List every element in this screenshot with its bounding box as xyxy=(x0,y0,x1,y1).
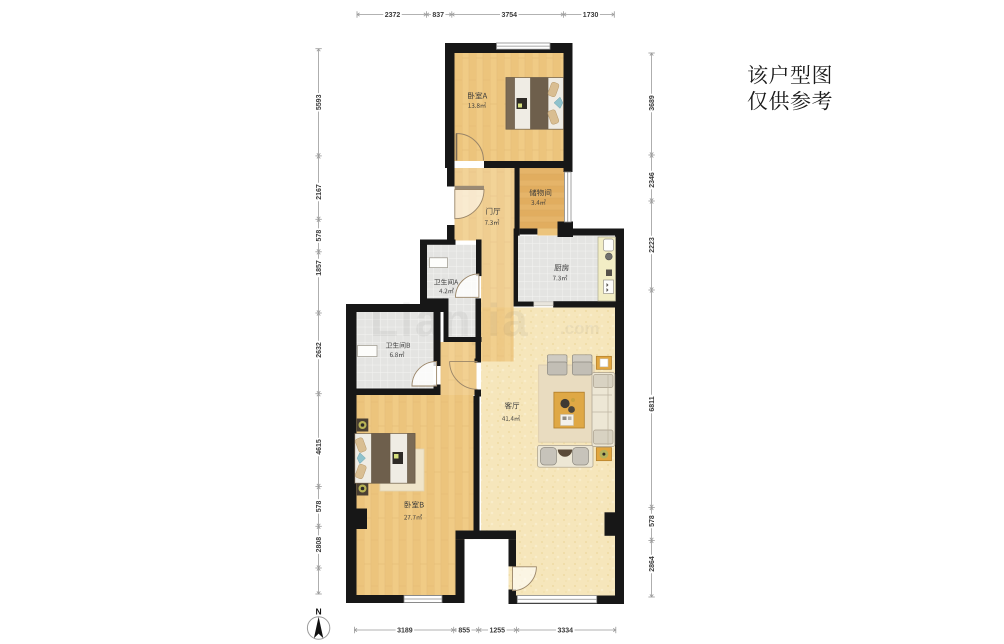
svg-text:2372: 2372 xyxy=(385,12,401,19)
svg-text:1730: 1730 xyxy=(583,12,599,19)
svg-text:578: 578 xyxy=(316,230,323,242)
svg-text:4615: 4615 xyxy=(316,439,323,455)
svg-text:5593: 5593 xyxy=(316,94,323,110)
svg-text:578: 578 xyxy=(649,515,656,527)
svg-text:837: 837 xyxy=(432,12,444,19)
svg-text:2864: 2864 xyxy=(649,556,656,572)
svg-text:6811: 6811 xyxy=(649,396,656,411)
svg-text:1255: 1255 xyxy=(490,628,506,635)
svg-text:3334: 3334 xyxy=(558,628,574,635)
svg-text:2808: 2808 xyxy=(316,537,323,553)
svg-text:2167: 2167 xyxy=(316,184,323,200)
svg-text:855: 855 xyxy=(458,628,470,635)
svg-text:3189: 3189 xyxy=(397,628,413,635)
svg-text:2223: 2223 xyxy=(649,237,656,253)
svg-text:578: 578 xyxy=(316,500,323,512)
svg-text:3689: 3689 xyxy=(649,95,656,111)
svg-text:N: N xyxy=(316,607,322,617)
svg-text:2346: 2346 xyxy=(649,172,656,188)
svg-text:1857: 1857 xyxy=(316,260,323,276)
svg-text:.com: .com xyxy=(560,319,600,338)
svg-text:2632: 2632 xyxy=(316,342,323,358)
svg-text:3754: 3754 xyxy=(502,12,518,19)
